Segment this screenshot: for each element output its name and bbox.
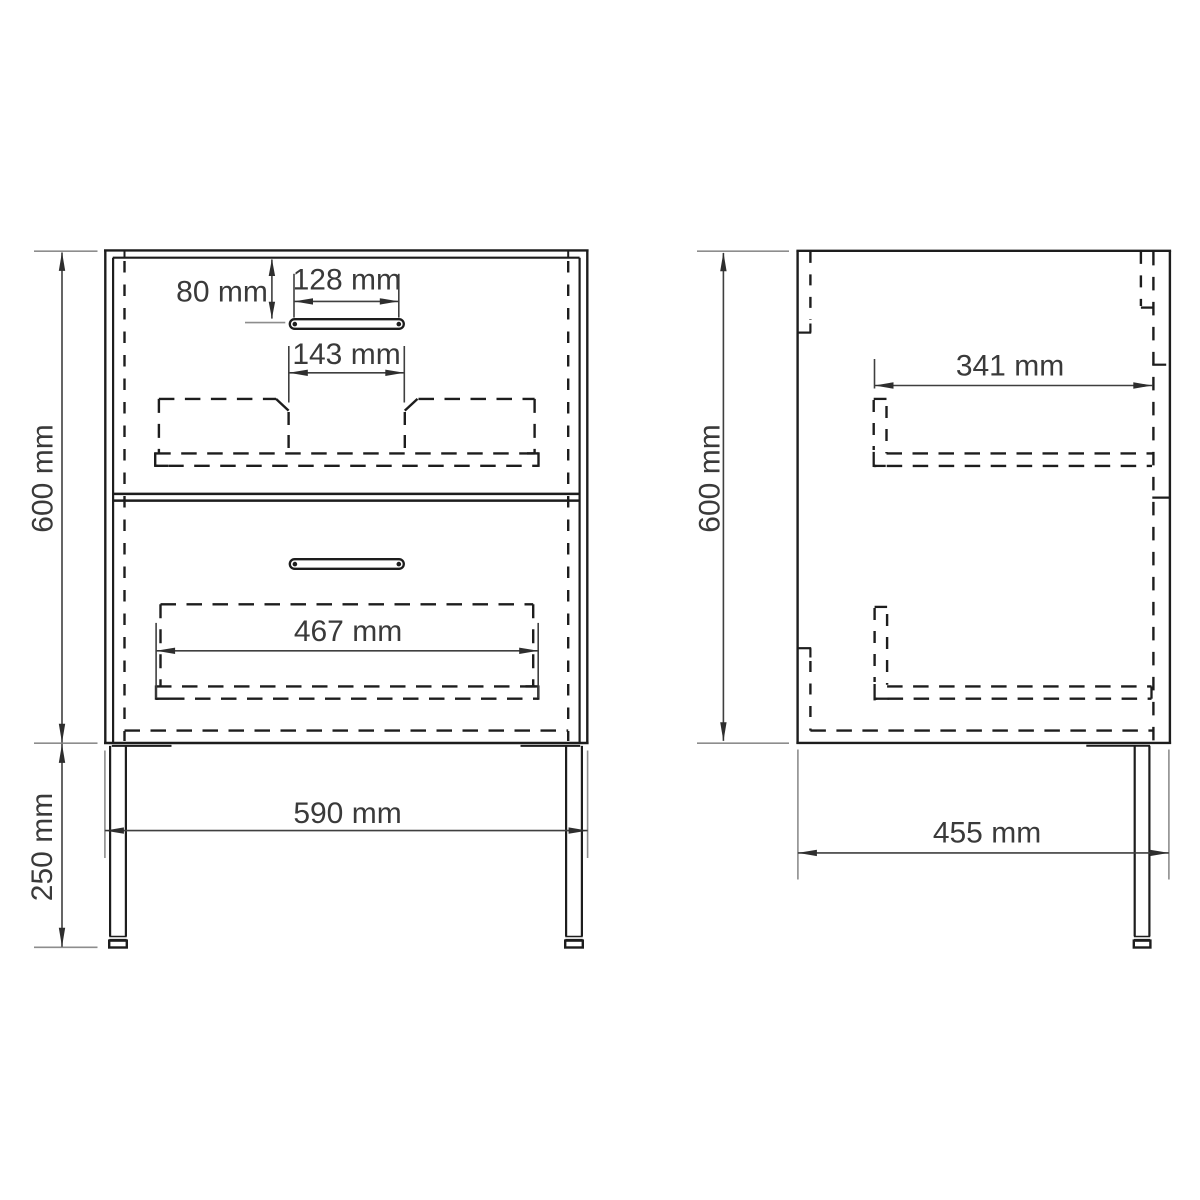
svg-text:455 mm: 455 mm [933,817,1041,850]
svg-text:467 mm: 467 mm [294,615,402,648]
svg-text:143 mm: 143 mm [292,338,400,371]
svg-text:600 mm: 600 mm [27,424,60,532]
svg-text:128 mm: 128 mm [293,264,401,297]
svg-text:600 mm: 600 mm [694,424,727,532]
svg-text:341 mm: 341 mm [956,350,1064,383]
svg-text:250 mm: 250 mm [26,793,59,901]
svg-text:590 mm: 590 mm [293,797,401,830]
svg-text:80 mm: 80 mm [176,276,268,309]
